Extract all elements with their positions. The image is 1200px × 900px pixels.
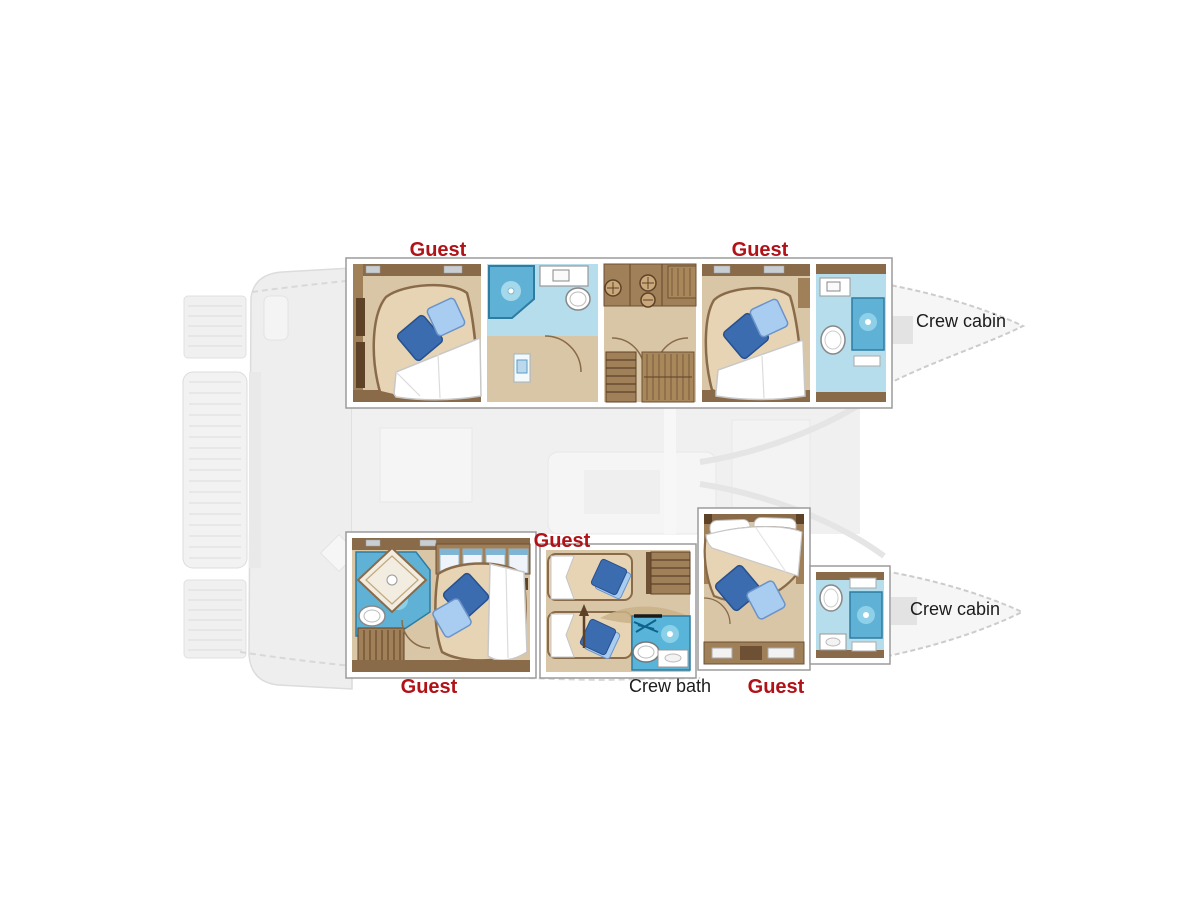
label-guest-top-left: Guest [410,239,467,261]
floor-plan-drawing [0,0,1200,900]
catamaran-floor-plan: Guest Guest Crew cabin Guest Crew cabin … [0,0,1200,900]
guest-cabin-top-right [702,264,810,402]
bed-top-left [374,285,481,400]
guest-cabin-top-left [353,264,481,402]
toilet [359,606,385,626]
label-guest-bottom-left: Guest [401,676,458,698]
aft-step [249,372,261,568]
bathroom-top-left [487,264,598,402]
toilet [633,642,659,662]
bed-bottom-left [432,564,527,661]
cabin-sideboard [704,642,804,664]
stairs-top [606,352,636,402]
stairs-bottom [646,552,690,594]
hull-top-strip [346,258,892,408]
single-bed-upper [548,554,632,600]
shelf [850,578,876,588]
swim-platform [183,372,247,568]
bench [854,356,880,366]
bathroom-bottom-right [810,566,890,664]
label-guest-bottom-right: Guest [748,676,805,698]
label-guest-top-right: Guest [732,239,789,261]
guest-cabin-middle [540,544,696,678]
label-crew-cabin-bottom: Crew cabin [910,600,1000,620]
aft-bench-bottom [184,580,246,658]
wardrobe-top [642,352,694,402]
bench [852,642,876,651]
guest-cabin-bottom-left [346,532,536,678]
aft-seat [264,296,288,340]
aft-bench-top [184,296,246,358]
corridor-top [604,264,696,402]
guest-cabin-bottom-right [698,508,810,670]
crew-bath-room [632,616,690,670]
bed-top-right [706,288,805,399]
bathroom-top-right [816,264,886,402]
label-guest-middle: Guest [534,530,591,552]
label-crew-cabin-top: Crew cabin [916,312,1006,332]
label-crew-bath: Crew bath [629,677,711,697]
